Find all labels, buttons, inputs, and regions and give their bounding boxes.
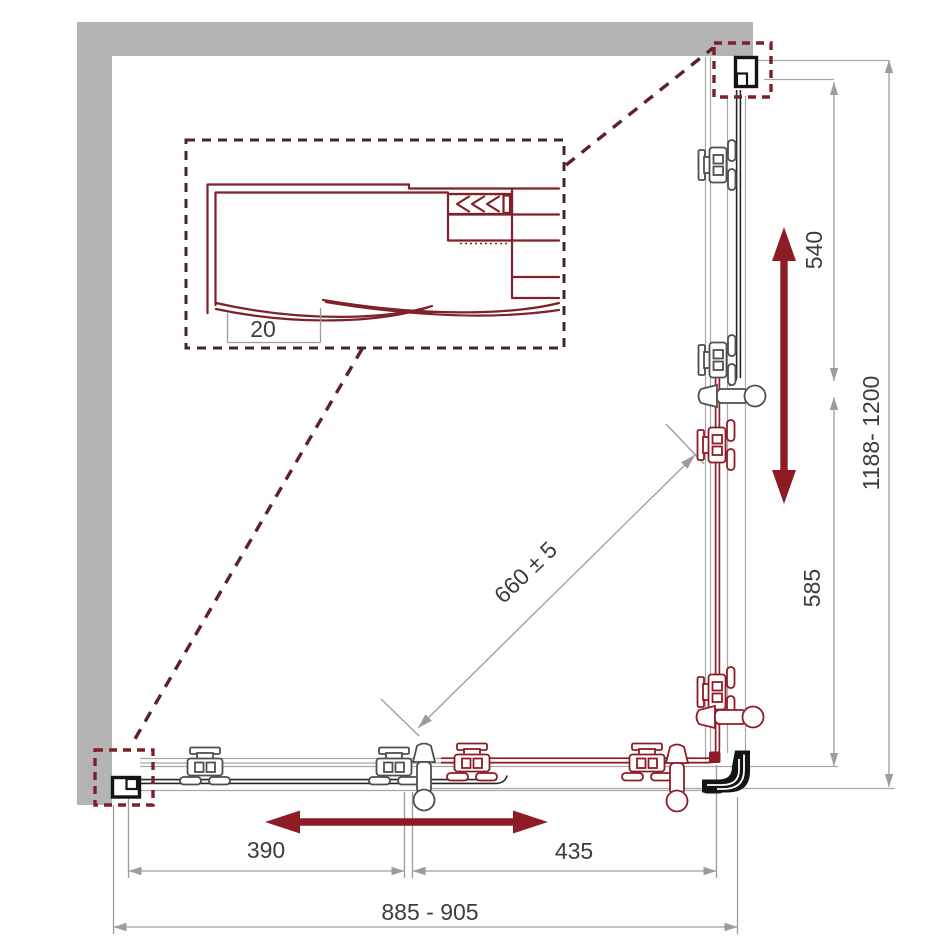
dimension-bottom-435: 435: [413, 838, 717, 875]
dimension-bottom-390: 390: [129, 837, 405, 875]
drawing-stage: 540 585 1188- 1200 390 435 885 - 905: [0, 0, 950, 950]
seal-chevrons-icon: [457, 196, 510, 214]
adjuster-knob-gray: [699, 385, 766, 407]
adjuster-knob-gray: [413, 744, 435, 811]
sliding-door-rails: [441, 377, 721, 763]
slide-arrow-horizontal: [265, 811, 548, 834]
detail-profile-drawing: 20: [208, 185, 560, 343]
dim-435-label: 435: [555, 838, 593, 864]
roller-carriage-red: [622, 744, 672, 781]
dim-885-905-label: 885 - 905: [381, 899, 478, 925]
dim-1188-1200-label: 1188- 1200: [858, 376, 884, 491]
fixed-glass-panels: [141, 90, 740, 783]
dimension-right-585: 585: [799, 397, 838, 766]
dimension-diagonal-660: 660 ± 5: [381, 424, 704, 736]
detail-leader-top: [566, 48, 713, 165]
wall-left: [77, 22, 112, 805]
dim-540-label: 540: [801, 231, 827, 269]
slide-arrow-vertical: [772, 227, 796, 504]
adjuster-knob-red: [666, 745, 688, 812]
dim-390-label: 390: [247, 837, 285, 863]
diagram-canvas: 540 585 1188- 1200 390 435 885 - 905: [0, 0, 950, 950]
wall-profile-top: [736, 58, 757, 87]
adjuster-knob-red: [697, 706, 764, 728]
detail-view-box: [186, 140, 564, 348]
roller-carriage-gray: [699, 335, 736, 385]
dimension-bottom-overall: 885 - 905: [114, 899, 738, 931]
dim-585-label: 585: [799, 569, 825, 607]
dimension-right-540: 540: [801, 82, 838, 381]
roller-carriage-red: [447, 744, 497, 781]
door-rail-corner: [709, 752, 721, 764]
detail-leader-bottom: [132, 349, 362, 744]
seal-strip-right: [323, 300, 559, 316]
detail-gap-label: 20: [250, 316, 276, 342]
dimension-right-overall: 1188- 1200: [858, 60, 893, 787]
roller-carriage-gray: [699, 140, 736, 190]
wall-top: [77, 22, 753, 56]
detail-callouts: [95, 43, 771, 805]
wall-profile-bottom: [113, 778, 140, 798]
